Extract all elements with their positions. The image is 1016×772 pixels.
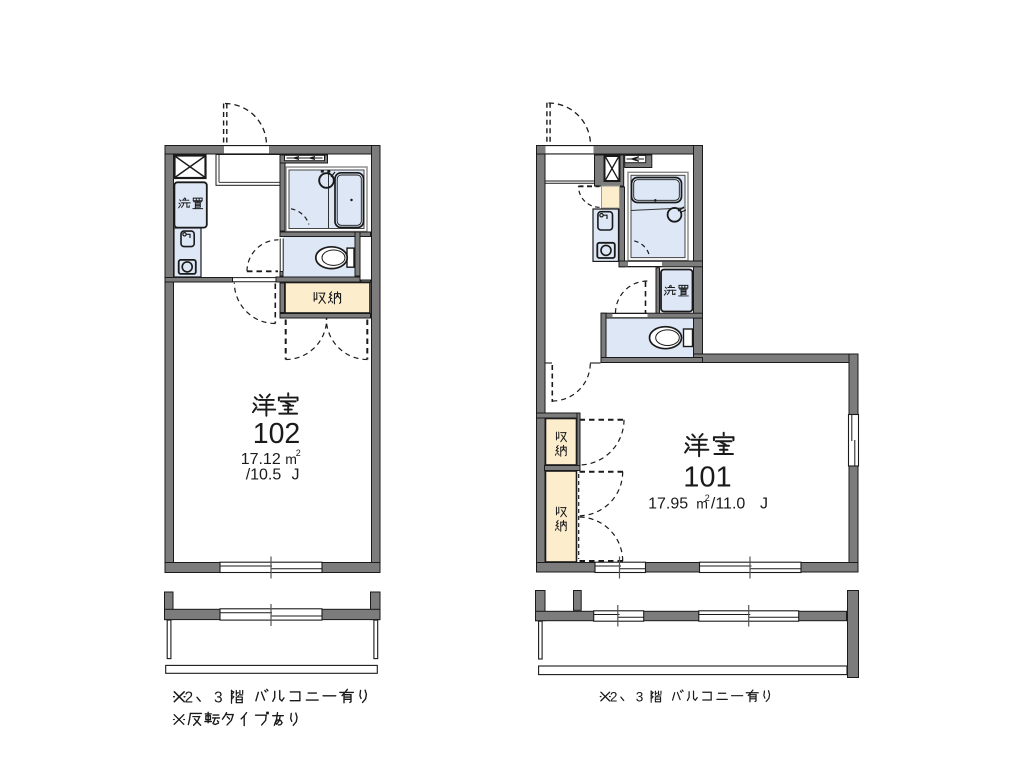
svg-text:17.95: 17.95 [648,495,688,512]
svg-text:J: J [292,466,300,483]
svg-text:2: 2 [185,689,194,706]
svg-text:2: 2 [705,493,710,503]
svg-text:2: 2 [610,690,618,705]
svg-text:102: 102 [253,418,301,450]
svg-text:2: 2 [296,448,301,458]
svg-text:3: 3 [636,690,644,705]
svg-text:101: 101 [683,461,731,493]
svg-text:3: 3 [214,689,223,706]
svg-text:J: J [760,495,768,512]
svg-text:/11.0: /11.0 [711,495,746,512]
svg-text:/10.5: /10.5 [246,466,282,483]
svg-text:17.12: 17.12 [241,451,281,468]
